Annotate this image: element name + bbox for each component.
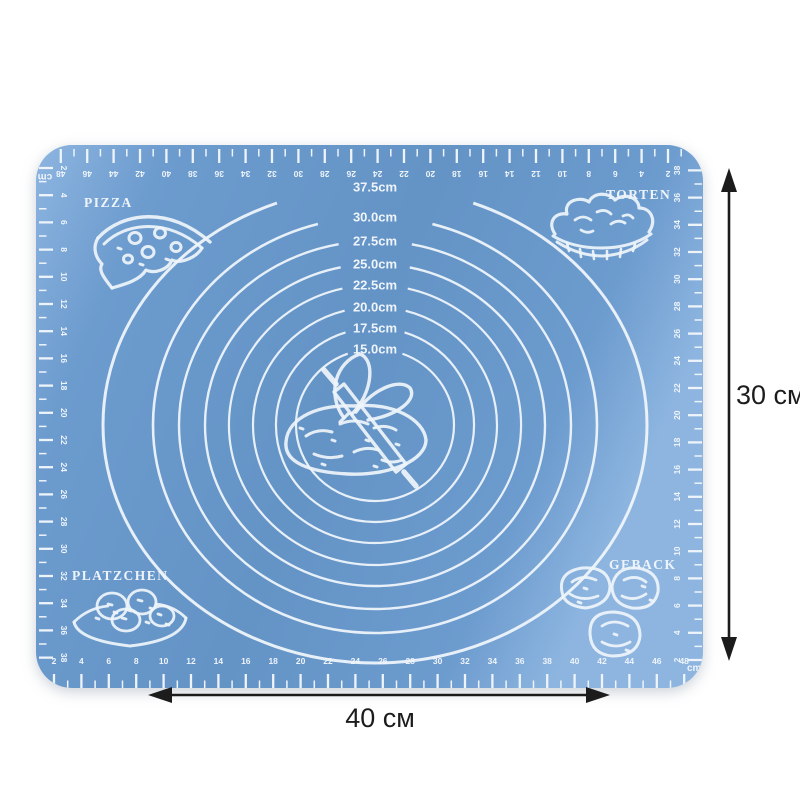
ruler-number: 36 — [214, 169, 224, 179]
ruler-number: 2 — [665, 169, 670, 179]
ruler-number: 16 — [478, 169, 488, 179]
unit-label-bottom: cm — [687, 663, 702, 674]
ruler-number: 34 — [59, 598, 69, 608]
ruler-number: 12 — [531, 169, 541, 179]
circle-diameter-label: 30.0cm — [353, 210, 397, 225]
ruler-number: 42 — [597, 656, 607, 666]
width-dimension: 40 см — [148, 687, 610, 733]
ruler-number: 14 — [214, 656, 224, 666]
ruler-number: 18 — [672, 437, 682, 447]
ruler-number: 6 — [613, 169, 618, 179]
ruler-number: 18 — [452, 169, 462, 179]
ruler-number: 30 — [293, 169, 303, 179]
ruler-number: 26 — [378, 656, 388, 666]
ruler-number: 44 — [625, 656, 635, 666]
ruler-number: 10 — [557, 169, 567, 179]
ruler-number: 2 — [59, 166, 69, 171]
baking-mat-scene: 4846444240383634323028262422201816141210… — [0, 0, 800, 800]
width-dimension-label: 40 см — [345, 703, 415, 733]
ruler-number: 32 — [267, 169, 277, 179]
ruler-number: 44 — [109, 169, 119, 179]
ruler-number: 4 — [639, 169, 644, 179]
height-dimension: 30 см — [721, 168, 800, 661]
platzchen-label: PLATZCHEN — [72, 568, 169, 583]
ruler-number: 46 — [652, 656, 662, 666]
circle-diameter-label: 25.0cm — [353, 257, 397, 272]
ruler-number: 12 — [672, 519, 682, 529]
ruler-number: 34 — [241, 169, 251, 179]
ruler-number: 22 — [59, 435, 69, 445]
ruler-number: 10 — [159, 656, 169, 666]
ruler-number: 30 — [59, 544, 69, 554]
ruler-number: 20 — [59, 408, 69, 418]
ruler-number: 16 — [672, 465, 682, 475]
ruler-number: 36 — [672, 193, 682, 203]
ruler-number: 36 — [59, 626, 69, 636]
ruler-number: 26 — [59, 490, 69, 500]
ruler-number: 10 — [59, 272, 69, 282]
circle-diameter-label: 20.0cm — [353, 300, 397, 315]
ruler-number: 14 — [59, 326, 69, 336]
ruler-number: 38 — [542, 656, 552, 666]
ruler-number: 12 — [186, 656, 196, 666]
ruler-number: 6 — [59, 220, 69, 225]
ruler-number: 38 — [59, 653, 69, 663]
circle-diameter-label: 37.5cm — [353, 180, 397, 195]
ruler-number: 12 — [59, 299, 69, 309]
ruler-number: 32 — [672, 247, 682, 257]
ruler-number: 24 — [59, 462, 69, 472]
ruler-number: 32 — [59, 571, 69, 581]
ruler-number: 16 — [241, 656, 251, 666]
ruler-number: 4 — [672, 630, 682, 635]
ruler-number: 36 — [515, 656, 525, 666]
ruler-number: 30 — [672, 274, 682, 284]
ruler-number: 10 — [672, 546, 682, 556]
ruler-number: 22 — [399, 169, 409, 179]
ruler-number: 26 — [672, 329, 682, 339]
ruler-number: 46 — [82, 169, 92, 179]
ruler-number: 8 — [134, 656, 139, 666]
ruler-number: 24 — [672, 356, 682, 366]
ruler-number: 20 — [672, 410, 682, 420]
ruler-number: 28 — [320, 169, 330, 179]
circle-diameter-label: 17.5cm — [353, 321, 397, 336]
ruler-number: 40 — [570, 656, 580, 666]
ruler-number: 18 — [268, 656, 278, 666]
ruler-number: 20 — [425, 169, 435, 179]
ruler-number: 22 — [672, 383, 682, 393]
ruler-number: 34 — [672, 220, 682, 230]
ruler-number: 20 — [296, 656, 306, 666]
ruler-number: 4 — [59, 193, 69, 198]
circle-diameter-label: 22.5cm — [353, 278, 397, 293]
ruler-number: 26 — [346, 169, 356, 179]
ruler-number: 48 — [56, 169, 66, 179]
ruler-number: 14 — [505, 169, 515, 179]
ruler-number: 34 — [488, 656, 498, 666]
height-arrow-head-top — [721, 168, 737, 192]
pizza-label: PIZZA — [84, 195, 133, 210]
ruler-number: 6 — [106, 656, 111, 666]
ruler-number: 18 — [59, 381, 69, 391]
ruler-number: 16 — [59, 354, 69, 364]
ruler-number: 42 — [135, 169, 145, 179]
height-arrow-head-bottom — [721, 637, 737, 661]
ruler-number: 38 — [672, 165, 682, 175]
ruler-number: 8 — [59, 247, 69, 252]
ruler-number: 28 — [672, 301, 682, 311]
ruler-number: 14 — [672, 492, 682, 502]
width-arrow-head-right — [586, 687, 610, 703]
product-photo: 4846444240383634323028262422201816141210… — [0, 0, 800, 800]
ruler-number: 6 — [672, 603, 682, 608]
ruler-number: 2 — [672, 657, 682, 662]
ruler-number: 8 — [586, 169, 591, 179]
ruler-number: 40 — [161, 169, 171, 179]
circle-diameter-label: 27.5cm — [353, 234, 397, 249]
unit-label-top: cm — [38, 171, 53, 182]
height-dimension-label: 30 см — [736, 380, 800, 410]
ruler-number: 8 — [672, 576, 682, 581]
ruler-number: 28 — [59, 517, 69, 527]
ruler-number: 4 — [79, 656, 84, 666]
width-arrow-head-left — [148, 687, 172, 703]
ruler-number: 24 — [373, 169, 383, 179]
ruler-number: 32 — [460, 656, 470, 666]
ruler-number: 38 — [188, 169, 198, 179]
